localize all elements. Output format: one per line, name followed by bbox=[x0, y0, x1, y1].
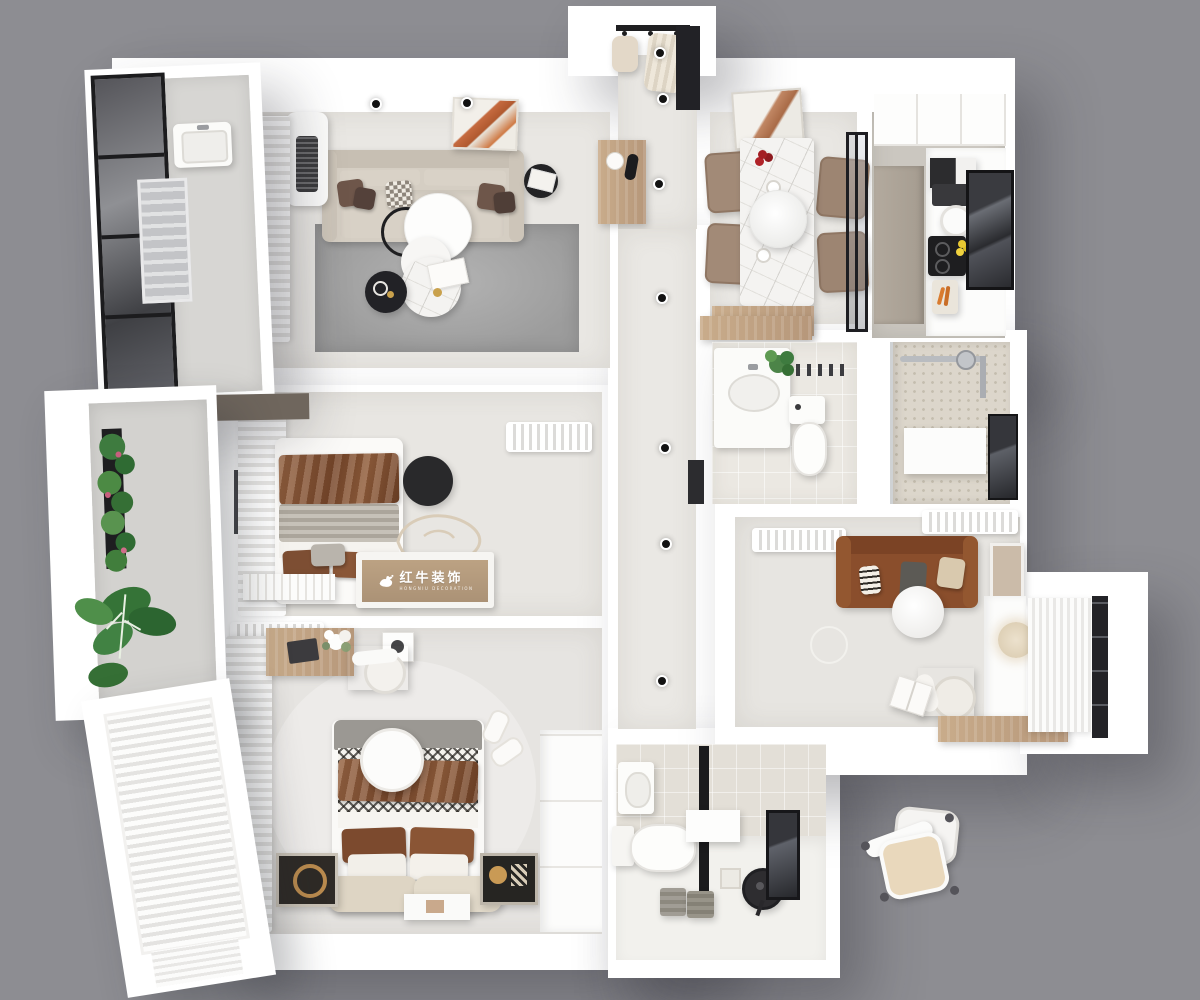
floor-lamp-ring bbox=[810, 626, 848, 664]
sofa-pillow-dark bbox=[352, 186, 376, 210]
ceiling-spotlight bbox=[461, 97, 473, 109]
photo bbox=[426, 900, 444, 913]
sofa-pillow-dark bbox=[493, 191, 516, 214]
ceiling-spotlight bbox=[654, 47, 666, 59]
cutting-board bbox=[932, 280, 958, 314]
kitchen-upper-cabinets bbox=[874, 94, 1006, 146]
bathroom2-window bbox=[766, 810, 800, 900]
lemons bbox=[958, 240, 966, 248]
wall-niche bbox=[688, 460, 704, 504]
leaning-art-right bbox=[480, 853, 538, 905]
office-chair-seat bbox=[932, 676, 976, 720]
ceiling-spotlight bbox=[653, 178, 665, 190]
study-pillow-beige bbox=[936, 556, 966, 589]
bedroom2-pillow-gray bbox=[311, 543, 346, 566]
ceiling-spotlight bbox=[657, 93, 669, 105]
plants bbox=[49, 396, 216, 721]
study-sofa-arm bbox=[963, 536, 978, 608]
flush-button bbox=[795, 404, 801, 410]
floor-drain bbox=[720, 868, 741, 889]
tablet bbox=[287, 638, 320, 664]
wall-shelf bbox=[686, 810, 740, 842]
sofa-back bbox=[322, 150, 524, 168]
glass-partition bbox=[846, 132, 868, 332]
study-desk bbox=[984, 596, 1026, 724]
study-ac-right bbox=[922, 510, 1018, 534]
fan-hub bbox=[756, 882, 764, 890]
ac-tower-grill bbox=[296, 136, 318, 192]
plant-balcony bbox=[44, 385, 228, 725]
shower-head bbox=[956, 350, 976, 370]
study-coffee-table bbox=[892, 586, 944, 638]
burner bbox=[935, 242, 950, 257]
bed-tray-table bbox=[360, 728, 424, 792]
faucet bbox=[748, 364, 758, 370]
leaning-art-left bbox=[276, 853, 338, 907]
glazing-bar bbox=[98, 153, 164, 160]
study-bay-sheer-curtain bbox=[1028, 598, 1092, 732]
toilet-tank bbox=[789, 396, 825, 424]
bathroom1-window bbox=[988, 414, 1018, 500]
partition-mullion bbox=[855, 135, 858, 329]
burner bbox=[935, 259, 950, 274]
study-ac-left bbox=[752, 528, 846, 552]
storage-basket bbox=[687, 891, 714, 918]
watermark-brand-latin: HONGNIU DECORATION bbox=[400, 587, 474, 591]
art-gold-disc bbox=[489, 866, 507, 884]
study-sofa-back bbox=[836, 536, 978, 554]
gold-cup bbox=[433, 288, 442, 297]
berry-decor bbox=[758, 150, 767, 159]
shower-pipe bbox=[980, 356, 986, 398]
chair-seat-tan bbox=[877, 830, 952, 902]
sofa-pillow-checker bbox=[385, 180, 413, 208]
pendant-lamp bbox=[749, 190, 807, 248]
utility-balcony bbox=[84, 62, 275, 425]
ceiling-spotlight bbox=[659, 442, 671, 454]
study-pillow-pattern bbox=[859, 565, 882, 595]
glazing-bar bbox=[105, 312, 171, 319]
watermark-panel: 红牛装饰 HONGNIU DECORATION bbox=[362, 560, 488, 602]
bathroom2-sink bbox=[618, 762, 654, 814]
floorplan-render: 红牛装饰 HONGNIU DECORATION bbox=[0, 0, 1200, 1000]
bedroom2-radiator bbox=[506, 422, 592, 452]
book-spine bbox=[905, 681, 916, 710]
entry-door-dark bbox=[676, 26, 700, 110]
cup bbox=[756, 248, 771, 263]
master-wardrobe bbox=[540, 730, 602, 932]
toilet-bowl bbox=[792, 422, 827, 476]
gold-decor bbox=[387, 291, 394, 298]
bedroom2-ac-unit bbox=[243, 574, 335, 600]
corridor-floor bbox=[618, 229, 696, 729]
bed-foot-cabinet: 红牛装饰 HONGNIU DECORATION bbox=[356, 552, 494, 608]
hanging-bag bbox=[612, 36, 638, 72]
bedroom2-black-pouf bbox=[403, 456, 453, 506]
laundry-faucet bbox=[197, 125, 209, 131]
plate bbox=[373, 281, 388, 296]
chair-leg bbox=[949, 885, 960, 896]
art-pattern bbox=[511, 864, 527, 886]
sink-basin bbox=[625, 772, 651, 808]
photo-mat bbox=[404, 894, 470, 920]
coffee-table-black bbox=[365, 271, 407, 313]
white-vase bbox=[606, 152, 624, 170]
black-vase bbox=[624, 153, 639, 181]
entry-console bbox=[598, 140, 646, 224]
kitchen-tall-cabinet bbox=[874, 166, 924, 324]
master-sheet bbox=[338, 812, 478, 828]
laundry-basin bbox=[181, 130, 228, 164]
bedroom2-knit-throw bbox=[279, 504, 399, 542]
floating-chairs bbox=[849, 796, 975, 916]
kitchen-window bbox=[966, 170, 1014, 290]
study-bay-window-frame bbox=[1092, 596, 1108, 738]
shower-bench-cabinet bbox=[904, 428, 986, 474]
ceiling-spotlight bbox=[656, 292, 668, 304]
ac-tower bbox=[286, 112, 328, 206]
art-gold-ring bbox=[293, 864, 327, 898]
storage-basket bbox=[660, 888, 686, 916]
drying-rack bbox=[137, 178, 192, 304]
study-wall-art bbox=[990, 543, 1024, 601]
bedroom2-blanket bbox=[279, 453, 400, 505]
watermark-brand: 红牛装饰 bbox=[400, 572, 474, 585]
bull-icon bbox=[377, 572, 395, 590]
ceiling-spotlight bbox=[370, 98, 382, 110]
master-desk-chair bbox=[348, 646, 408, 690]
ceiling-spotlight bbox=[660, 538, 672, 550]
shower-hardware-row bbox=[796, 364, 848, 376]
ceiling-spotlight bbox=[656, 675, 668, 687]
half-wall-wood-top bbox=[700, 316, 812, 340]
laundry-sink bbox=[173, 122, 233, 168]
shower-glass-edge bbox=[890, 342, 893, 504]
study-sofa-arm bbox=[836, 536, 851, 608]
